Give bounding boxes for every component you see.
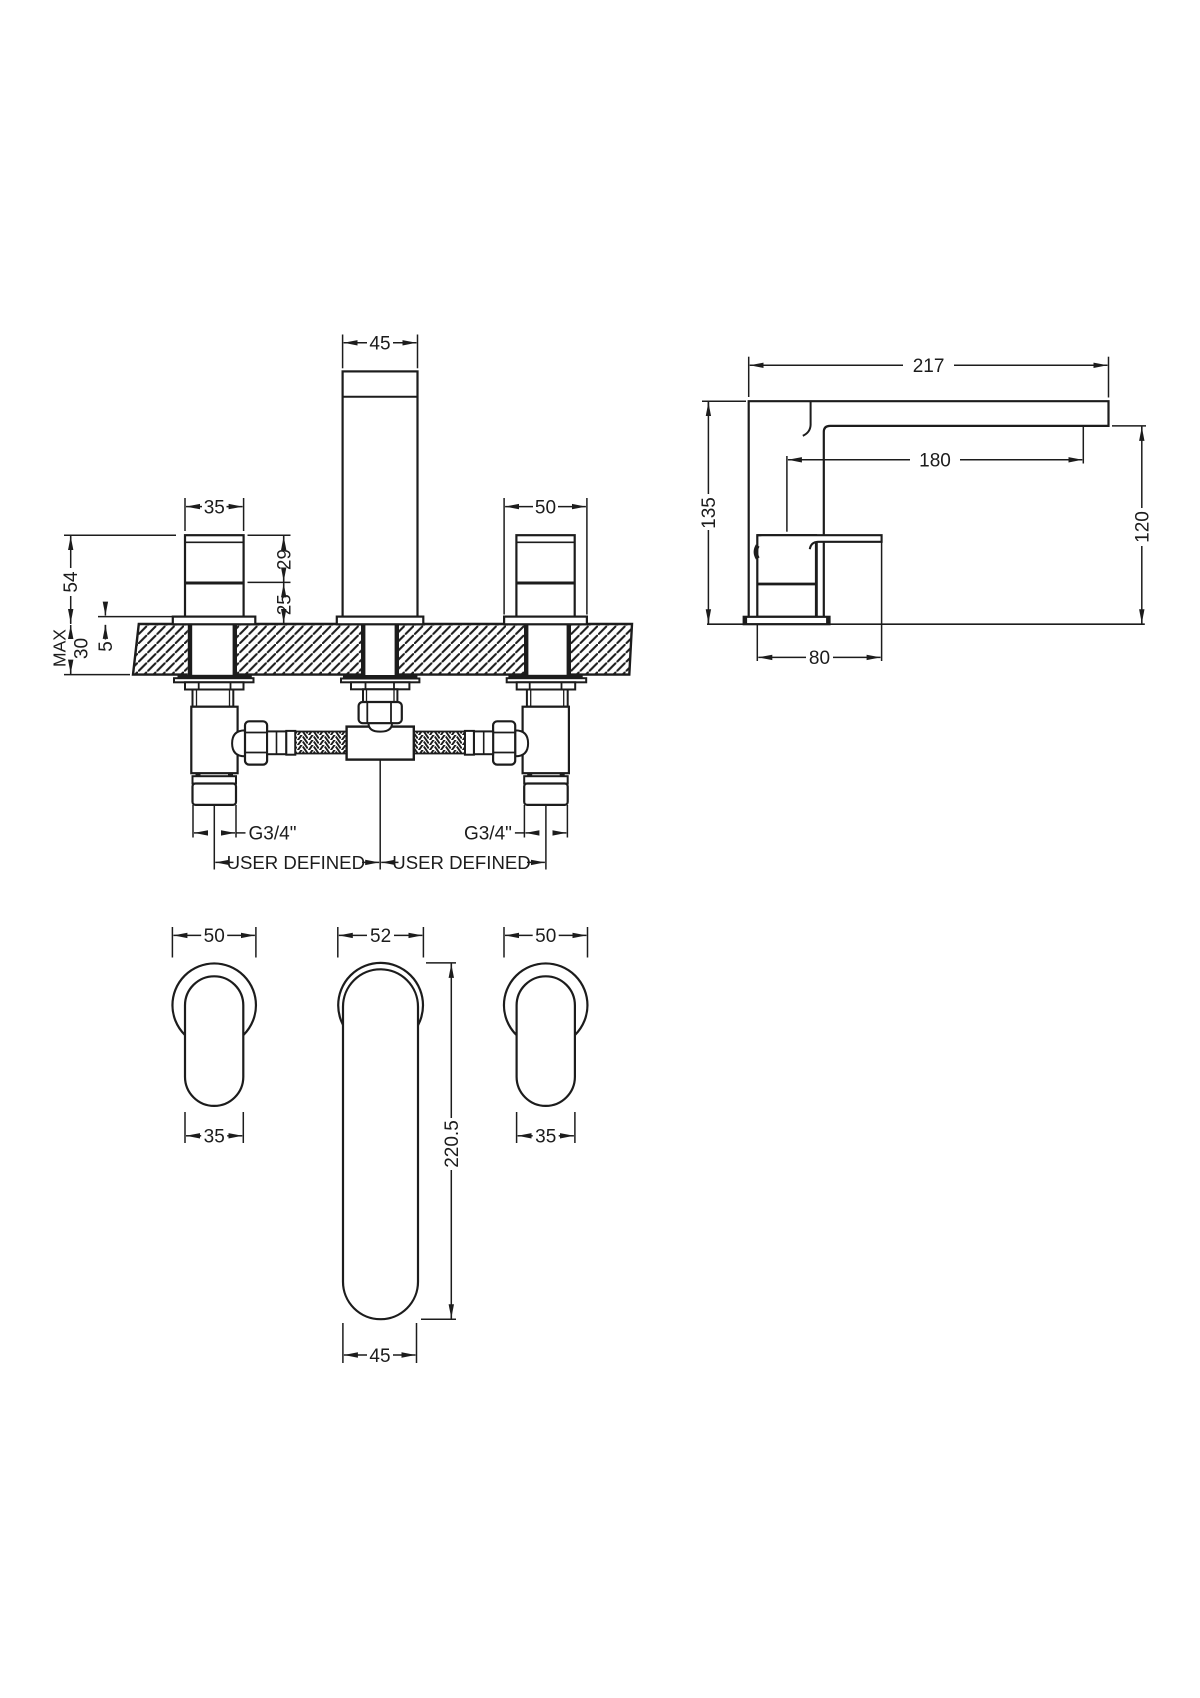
svg-text:120: 120 <box>1132 511 1153 543</box>
svg-text:USER DEFINED: USER DEFINED <box>392 852 530 873</box>
svg-text:80: 80 <box>809 648 830 669</box>
svg-text:35: 35 <box>204 497 225 518</box>
svg-text:25: 25 <box>274 594 295 615</box>
svg-text:35: 35 <box>535 1127 556 1148</box>
svg-text:135: 135 <box>699 497 720 529</box>
svg-text:G3/4": G3/4" <box>249 824 297 845</box>
svg-text:54: 54 <box>61 571 82 593</box>
svg-text:30: 30 <box>72 638 93 659</box>
svg-text:35: 35 <box>204 1127 225 1148</box>
svg-text:G3/4": G3/4" <box>464 824 512 845</box>
svg-text:29: 29 <box>274 549 295 570</box>
svg-text:50: 50 <box>535 926 556 947</box>
svg-text:180: 180 <box>919 451 951 472</box>
svg-text:52: 52 <box>370 926 391 947</box>
svg-text:50: 50 <box>535 497 556 518</box>
svg-text:45: 45 <box>369 334 390 355</box>
svg-text:45: 45 <box>369 1346 390 1367</box>
svg-text:USER DEFINED: USER DEFINED <box>227 852 365 873</box>
svg-text:217: 217 <box>913 356 945 377</box>
svg-text:50: 50 <box>204 926 225 947</box>
svg-text:220.5: 220.5 <box>442 1120 463 1168</box>
svg-text:MAX: MAX <box>50 629 70 667</box>
svg-text:5: 5 <box>96 641 117 652</box>
